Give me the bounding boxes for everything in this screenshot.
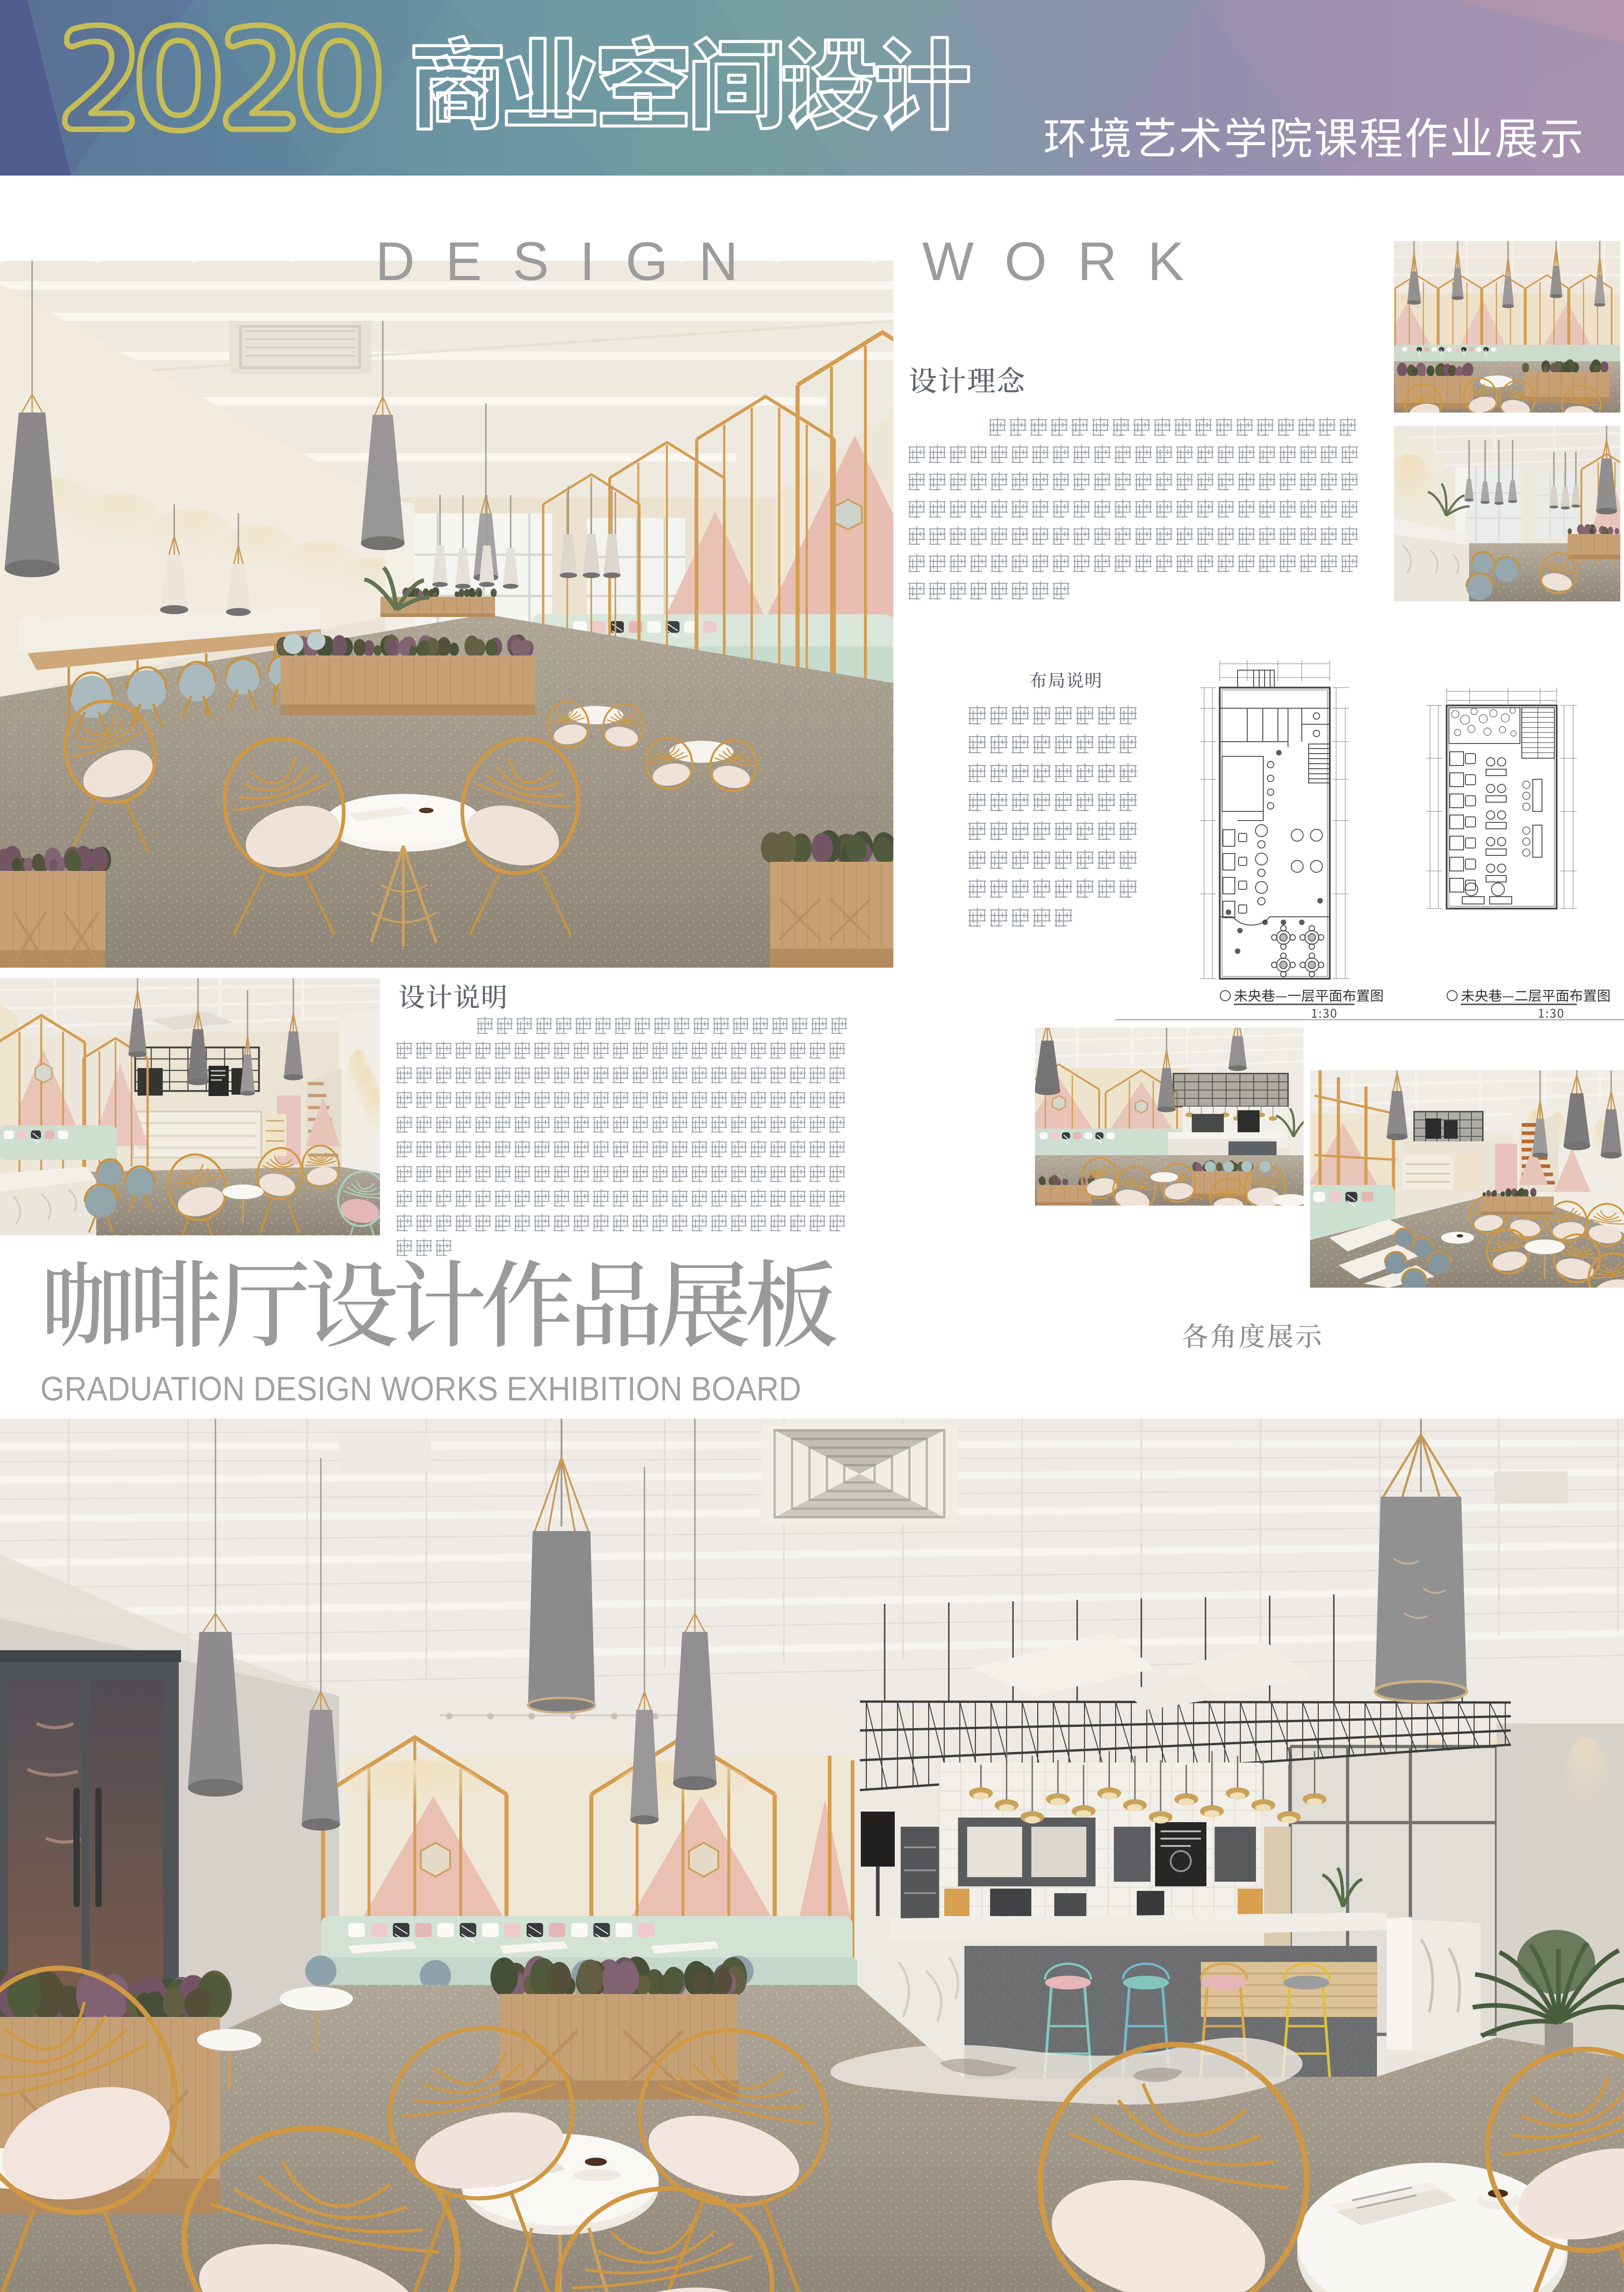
svg-text:WORK: WORK (922, 231, 1215, 292)
svg-text:GRADUATION DESIGN WORKS EXHIBI: GRADUATION DESIGN WORKS EXHIBITION BOARD (40, 1370, 801, 1408)
svg-text:DESIGN: DESIGN (375, 231, 769, 292)
